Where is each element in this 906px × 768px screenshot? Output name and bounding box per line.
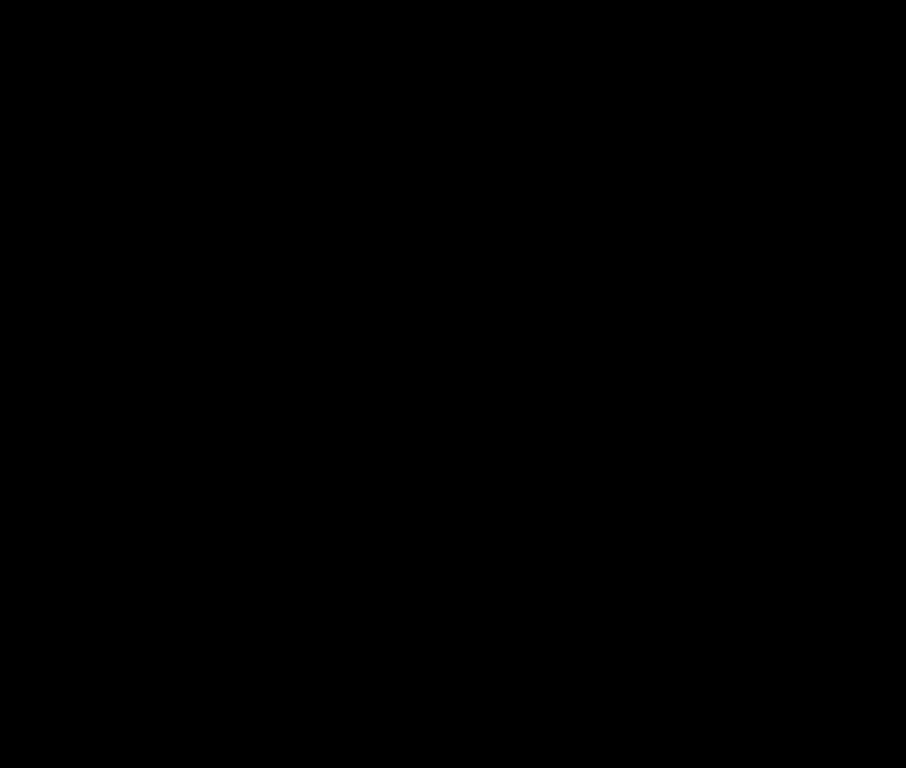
floor-plan-page — [0, 0, 906, 768]
floor-plan-svg — [0, 0, 906, 768]
background — [0, 0, 906, 768]
